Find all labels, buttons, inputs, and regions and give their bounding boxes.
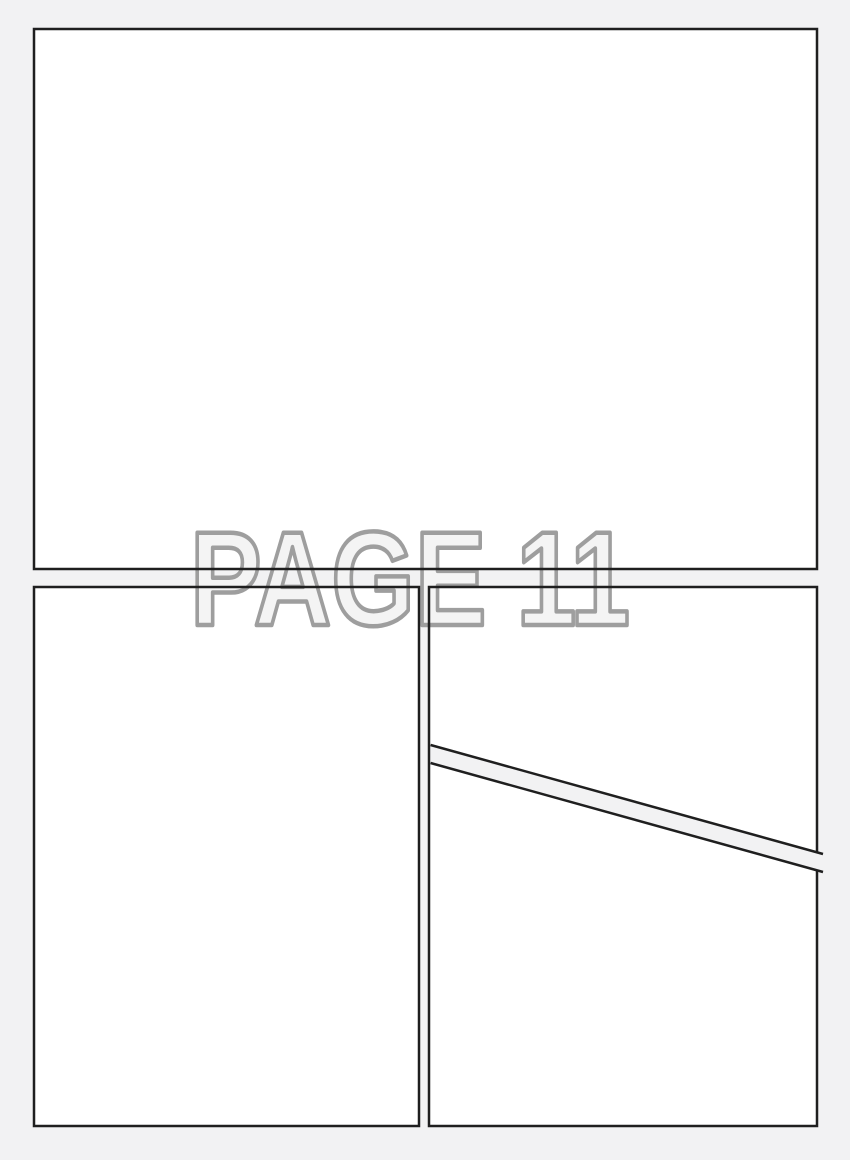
comic-page-template: PAGE 11 (0, 0, 850, 1160)
page-number-watermark: PAGE 11 (190, 505, 630, 654)
top-panel (34, 29, 817, 569)
bottom-right-panel (429, 587, 817, 1126)
bottom-left-panel (34, 587, 419, 1126)
page-canvas: PAGE 11 (0, 0, 850, 1160)
